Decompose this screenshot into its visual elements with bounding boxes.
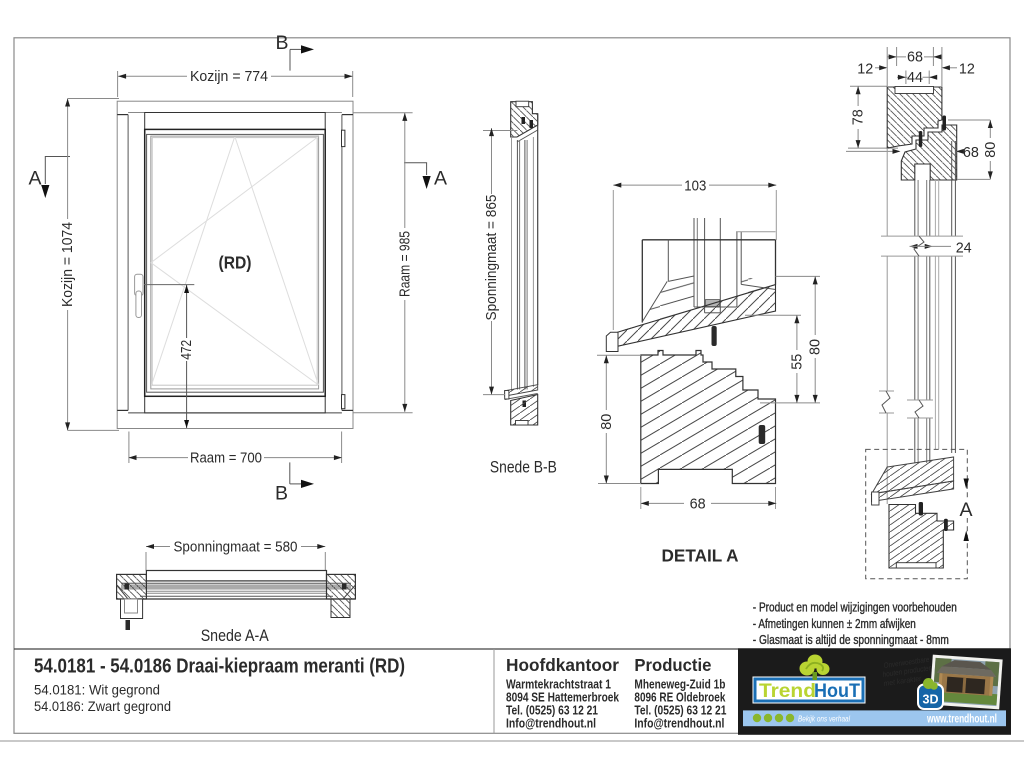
svg-text:78: 78	[850, 109, 867, 125]
svg-text:54.0186: Zwart gegrond: 54.0186: Zwart gegrond	[34, 698, 171, 714]
svg-text:A: A	[959, 499, 972, 521]
svg-text:A: A	[434, 168, 447, 190]
svg-text:B: B	[275, 32, 288, 54]
svg-text:12: 12	[857, 60, 873, 77]
svg-text:DETAIL A: DETAIL A	[662, 546, 739, 566]
svg-text:44: 44	[907, 69, 923, 86]
svg-text:8096 RE Oldebroek: 8096 RE Oldebroek	[634, 690, 725, 704]
svg-text:55: 55	[788, 354, 805, 370]
svg-text:Tel. (0525) 63 12 21: Tel. (0525) 63 12 21	[634, 704, 726, 718]
svg-text:Productie: Productie	[634, 655, 711, 675]
svg-text:- Glasmaat is altijd de sponni: - Glasmaat is altijd de sponningmaat - 8…	[753, 633, 949, 647]
svg-text:Sponningmaat = 865: Sponningmaat = 865	[483, 195, 500, 321]
svg-text:80: 80	[598, 414, 615, 430]
svg-text:Hoofdkantoor: Hoofdkantoor	[506, 655, 619, 675]
svg-text:68: 68	[963, 144, 979, 161]
svg-text:103: 103	[684, 177, 706, 194]
svg-text:Tel. (0525) 63 12 21: Tel. (0525) 63 12 21	[506, 704, 598, 718]
svg-text:Snede A-A: Snede A-A	[201, 627, 269, 645]
svg-text:68: 68	[907, 49, 923, 66]
svg-text:68: 68	[690, 496, 706, 513]
svg-text:Kozijn = 774: Kozijn = 774	[190, 68, 268, 85]
svg-text:Raam = 985: Raam = 985	[396, 231, 413, 297]
svg-text:54.0181 - 54.0186 Draai-kiepra: 54.0181 - 54.0186 Draai-kiepraam meranti…	[34, 656, 405, 678]
svg-text:(RD): (RD)	[219, 253, 252, 273]
svg-text:- Afmetingen kunnen ± 2mm afwi: - Afmetingen kunnen ± 2mm afwijken	[753, 617, 916, 631]
svg-text:www.trendhout.nl: www.trendhout.nl	[926, 714, 997, 726]
svg-text:24: 24	[956, 239, 972, 256]
svg-text:54.0181: Wit gegrond: 54.0181: Wit gegrond	[34, 682, 160, 698]
svg-text:- Product en model wijzigingen: - Product en model wijzigingen voorbehou…	[753, 601, 957, 615]
svg-text:12: 12	[959, 60, 975, 77]
svg-text:Kozijn = 1074: Kozijn = 1074	[59, 222, 76, 307]
svg-text:80: 80	[807, 339, 824, 355]
svg-text:Info@trendhout.nl: Info@trendhout.nl	[506, 717, 596, 731]
svg-text:A: A	[28, 168, 41, 190]
svg-text:472: 472	[178, 340, 195, 360]
svg-text:B: B	[275, 483, 288, 505]
svg-text:HouT: HouT	[814, 681, 860, 702]
svg-text:Trend: Trend	[759, 681, 816, 702]
svg-text:80: 80	[982, 142, 999, 158]
svg-text:8094 SE Hattemerbroek: 8094 SE Hattemerbroek	[506, 690, 619, 704]
svg-text:Info@trendhout.nl: Info@trendhout.nl	[634, 717, 724, 731]
svg-text:Snede B-B: Snede B-B	[490, 459, 557, 477]
svg-text:Bekijk ons verhaal: Bekijk ons verhaal	[798, 714, 851, 724]
svg-text:Raam = 700: Raam = 700	[190, 449, 262, 466]
svg-text:3D: 3D	[923, 693, 939, 707]
svg-text:Sponningmaat = 580: Sponningmaat = 580	[174, 538, 298, 555]
